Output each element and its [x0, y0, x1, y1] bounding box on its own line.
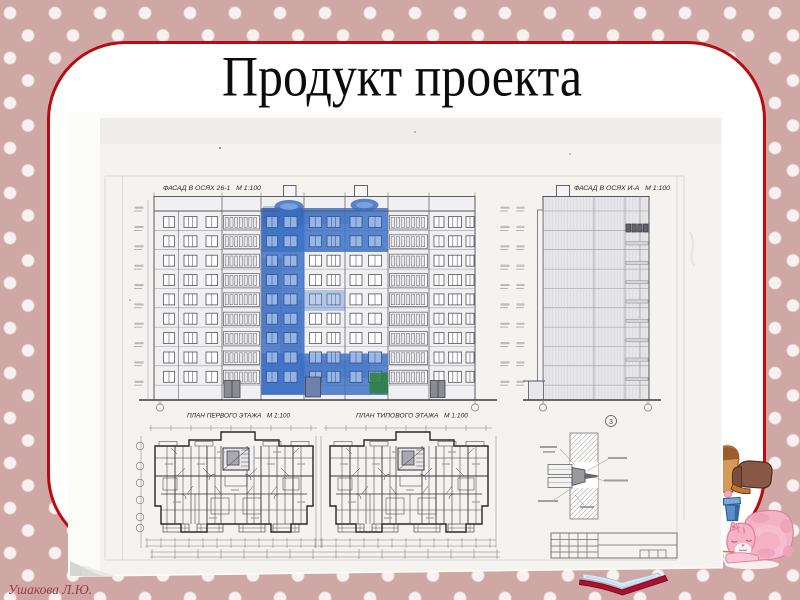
svg-text:ФАСАД В ОСЯХ 26-1 М 1:100: ФАСАД В ОСЯХ 26-1 М 1:100 — [163, 185, 261, 192]
svg-text:ПЛАН ТИПОВОГО ЭТАЖА М 1:100: ПЛАН ТИПОВОГО ЭТАЖА М 1:100 — [356, 413, 468, 420]
svg-text:ФАСАД В ОСЯХ И-А М 1:100: ФАСАД В ОСЯХ И-А М 1:100 — [574, 185, 670, 192]
svg-text:3: 3 — [609, 419, 613, 426]
svg-text:Ушакова Л.Ю.: Ушакова Л.Ю. — [8, 582, 92, 597]
svg-text:ПЛАН ПЕРВОГО ЭТАЖА М 1:100: ПЛАН ПЕРВОГО ЭТАЖА М 1:100 — [187, 413, 290, 420]
svg-text:Продукт проекта: Продукт проекта — [222, 46, 582, 109]
